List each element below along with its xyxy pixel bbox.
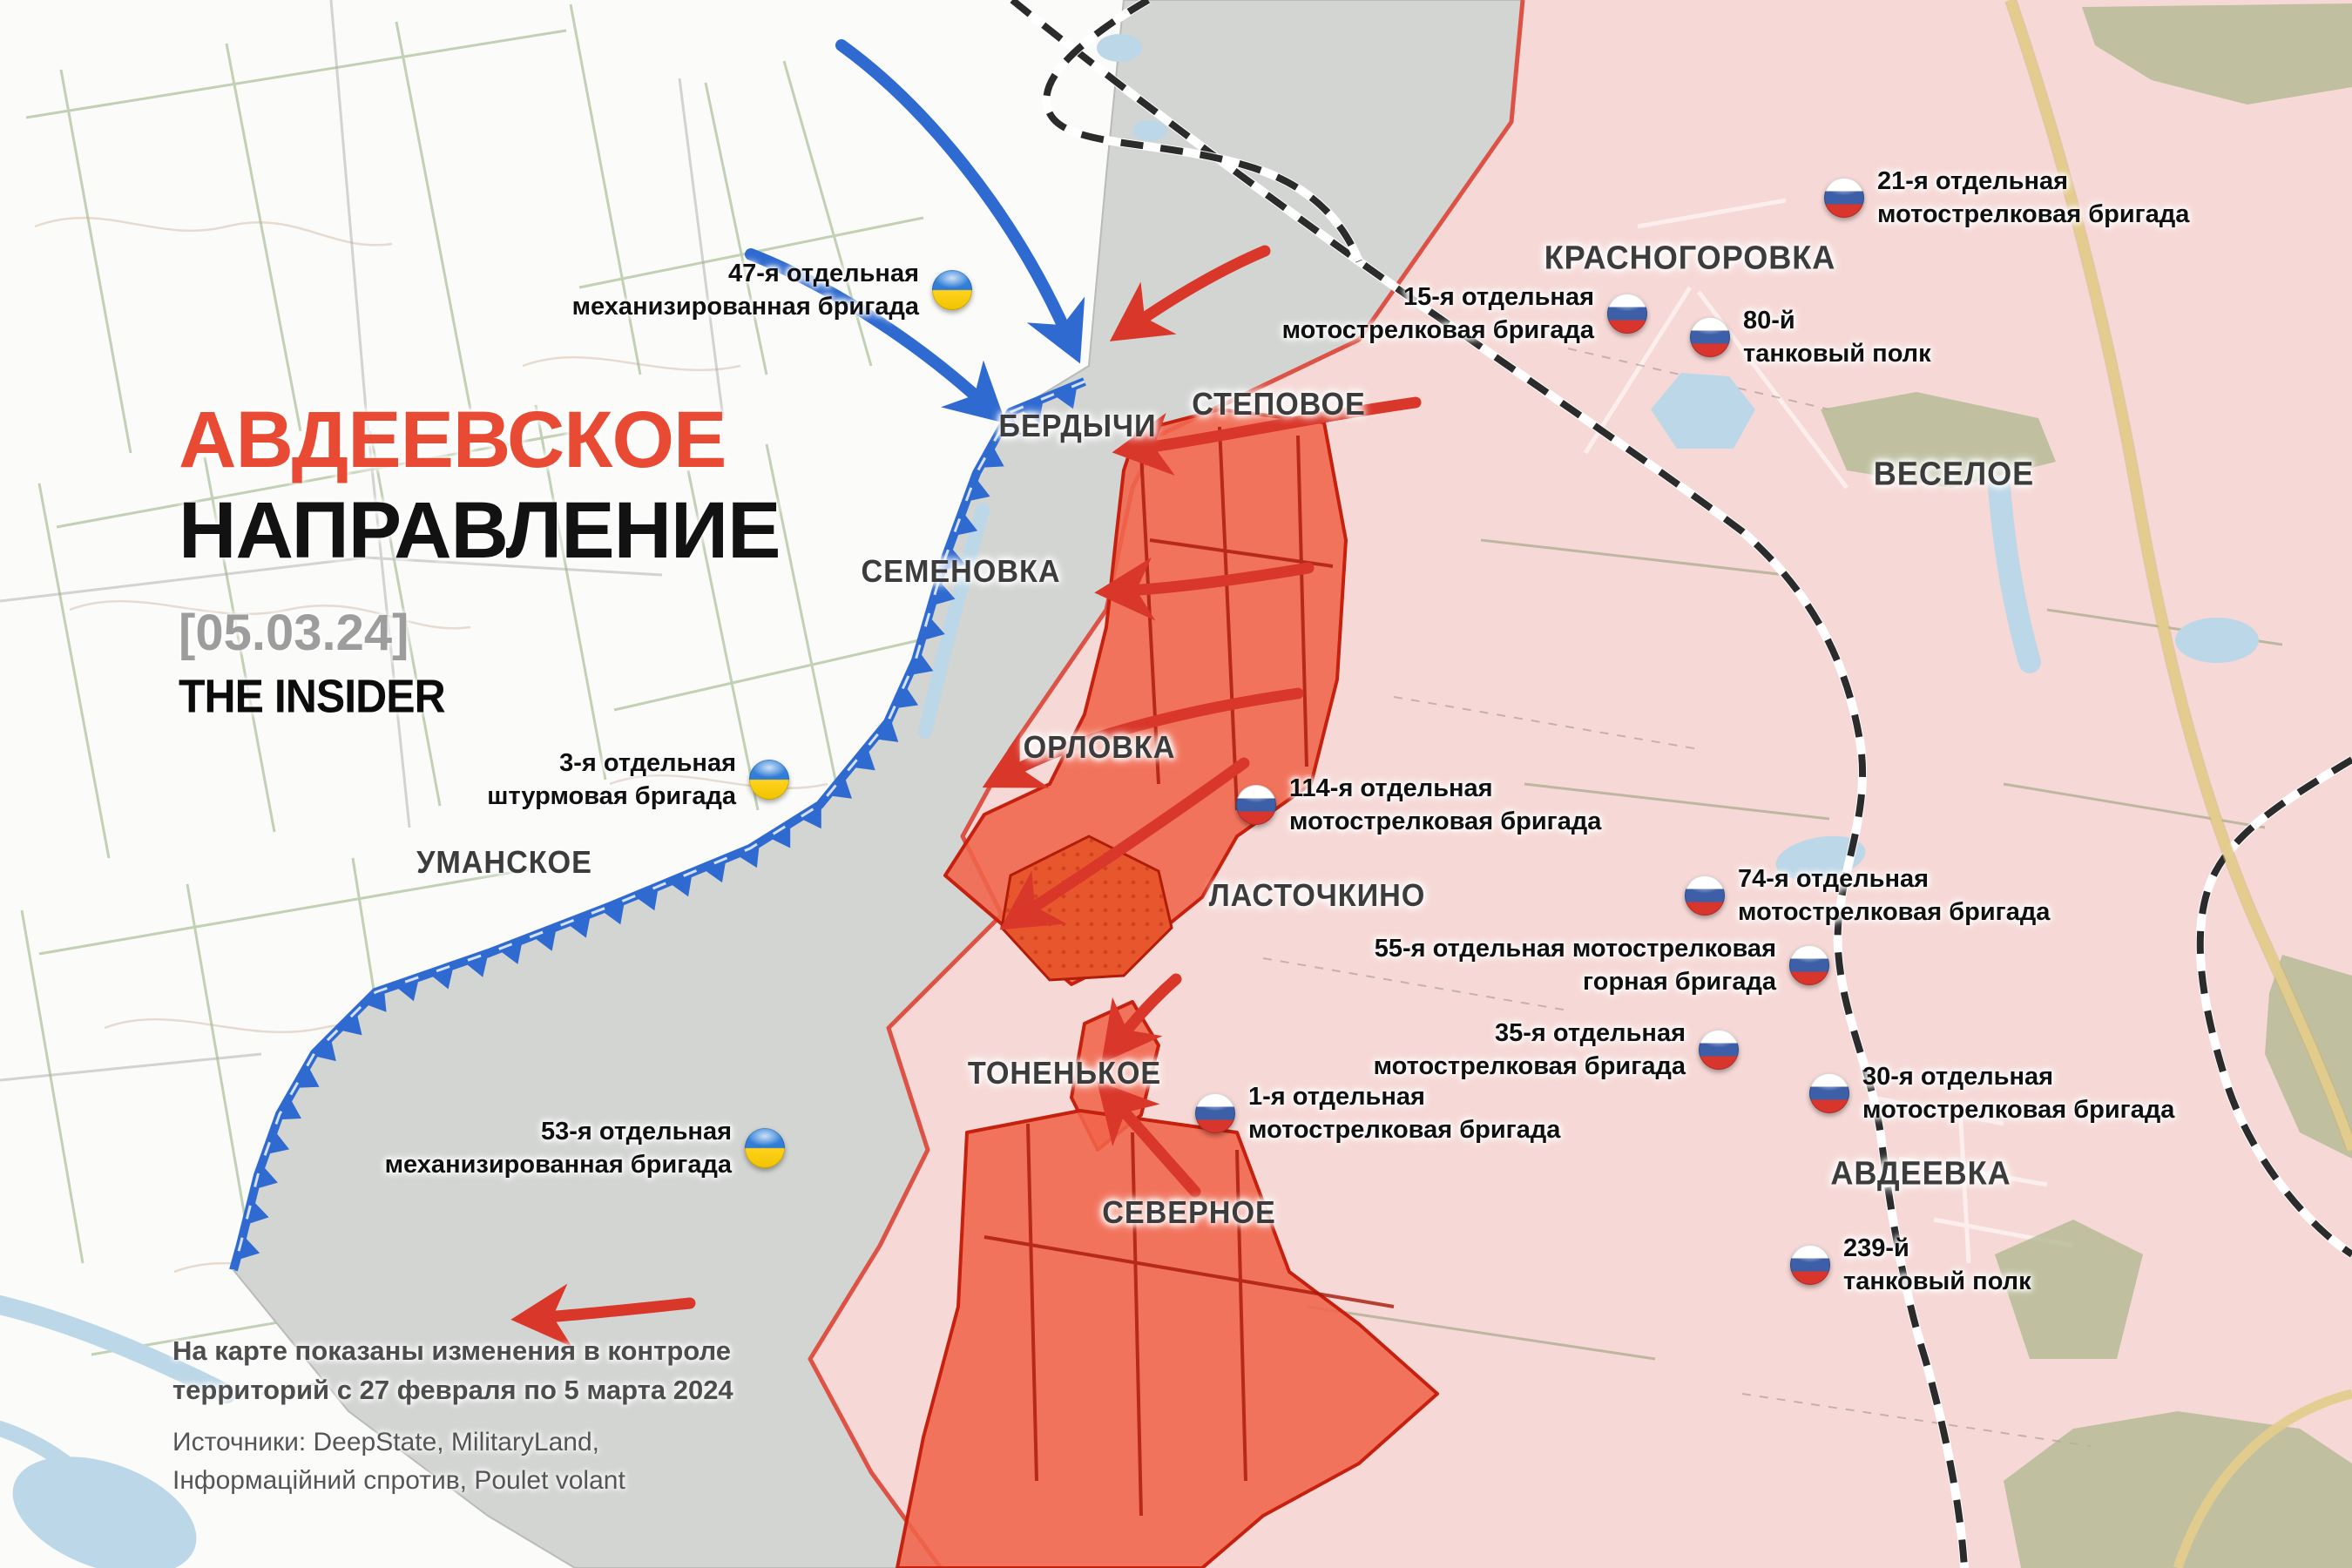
ukraine-flag-icon — [932, 270, 972, 310]
place-label-8: СЕВЕРНОЕ — [1102, 1194, 1276, 1231]
unit-label-9: 55-я отдельная мотострелковаягорная бриг… — [1375, 932, 1829, 998]
russia-flag-icon — [1790, 1245, 1830, 1285]
russia-flag-icon — [1824, 178, 1864, 218]
unit-label-text: 239-йтанковый полк — [1843, 1232, 2031, 1298]
unit-label-text: 15-я отдельнаямотострелковая бригада — [1282, 280, 1594, 347]
place-label-6: ЛАСТОЧКИНО — [1209, 877, 1426, 914]
russia-flag-icon — [1607, 294, 1647, 334]
unit-label-text: 80-йтанковый полк — [1743, 304, 1931, 370]
place-label-10: ВЕСЕЛОЕ — [1874, 456, 2034, 494]
map-title-line1: АВДЕЕВСКОЕ — [179, 396, 781, 483]
russia-flag-icon — [1685, 875, 1725, 916]
unit-label-text: 114-я отдельнаямотострелковая бригада — [1289, 772, 1601, 838]
russia-flag-icon — [1690, 317, 1730, 357]
ukraine-flag-icon — [745, 1128, 785, 1168]
map-date: [05.03.24] — [179, 604, 781, 662]
place-label-1: БЕРДЫЧИ — [998, 408, 1156, 444]
russia-flag-icon — [1809, 1073, 1849, 1113]
russia-flag-icon — [1236, 785, 1276, 825]
map-title-line2: НАПРАВЛЕНИЕ — [179, 483, 781, 578]
place-label-2: СТЕПОВОЕ — [1192, 386, 1366, 422]
footer-sources-line2: Інформаційний спротив, Poulet volant — [172, 1462, 733, 1500]
footer-note-line2: территорий с 27 февраля по 5 марта 2024 — [172, 1370, 733, 1409]
ukraine-flag-icon — [749, 760, 789, 800]
russia-flag-icon — [1195, 1093, 1235, 1133]
brand-logo: THE INSIDER — [179, 669, 781, 724]
place-label-9: КРАСНОГОРОВКА — [1544, 240, 1836, 278]
unit-label-text: 30-я отдельнаямотострелковая бригада — [1862, 1060, 2174, 1126]
unit-label-text: 53-я отдельнаямеханизированная бригада — [385, 1115, 732, 1181]
unit-label-12: 1-я отдельнаямотострелковая бригада — [1195, 1080, 1560, 1146]
unit-label-text: 47-я отдельнаямеханизированная бригада — [572, 257, 919, 323]
unit-label-4: 21-я отдельнаямотострелковая бригада — [1824, 165, 2189, 231]
unit-label-text: 74-я отдельнаямотострелковая бригада — [1738, 862, 2050, 929]
russia-flag-icon — [1789, 945, 1829, 985]
unit-label-text: 21-я отдельнаямотострелковая бригада — [1877, 165, 2189, 231]
unit-label-text: 35-я отдельнаямотострелковая бригада — [1374, 1017, 1686, 1083]
footer-note-line1: На карте показаны изменения в контроле — [172, 1331, 733, 1370]
unit-label-text: 3-я отдельнаяштурмовая бригада — [487, 747, 736, 813]
unit-label-2: 3-я отдельнаяштурмовая бригада — [487, 747, 789, 813]
place-label-4: ОРЛОВКА — [1024, 729, 1176, 766]
title-block: АВДЕЕВСКОЕ НАПРАВЛЕНИЕ [05.03.24] THE IN… — [179, 396, 781, 720]
unit-label-11: 30-я отдельнаямотострелковая бригада — [1809, 1060, 2174, 1126]
russia-flag-icon — [1699, 1030, 1739, 1070]
unit-label-7: 114-я отдельнаямотострелковая бригада — [1236, 772, 1601, 838]
place-label-11: АВДЕЕВКА — [1830, 1156, 2011, 1193]
unit-label-1: 47-я отдельнаямеханизированная бригада — [572, 257, 972, 323]
map-canvas: БЕРДЫЧИСТЕПОВОЕСЕМЕНОВКАОРЛОВКАУМАНСКОЕЛ… — [0, 0, 2352, 1568]
unit-label-5: 15-я отдельнаямотострелковая бригада — [1282, 280, 1647, 347]
unit-label-8: 74-я отдельнаямотострелковая бригада — [1685, 862, 2050, 929]
place-label-5: УМАНСКОЕ — [416, 844, 592, 881]
unit-label-6: 80-йтанковый полк — [1690, 304, 1931, 370]
unit-label-13: 239-йтанковый полк — [1790, 1232, 2031, 1298]
place-label-7: ТОНЕНЬКОЕ — [968, 1055, 1161, 1092]
unit-label-text: 55-я отдельная мотострелковаягорная бриг… — [1375, 932, 1776, 998]
place-label-3: СЕМЕНОВКА — [862, 553, 1061, 590]
unit-label-10: 35-я отдельнаямотострелковая бригада — [1374, 1017, 1739, 1083]
footer-note: На карте показаны изменения в контроле т… — [172, 1331, 733, 1500]
unit-label-3: 53-я отдельнаямеханизированная бригада — [385, 1115, 785, 1181]
footer-sources-line1: Источники: DeepState, MilitaryLand, — [172, 1423, 733, 1462]
unit-label-text: 1-я отдельнаямотострелковая бригада — [1248, 1080, 1560, 1146]
